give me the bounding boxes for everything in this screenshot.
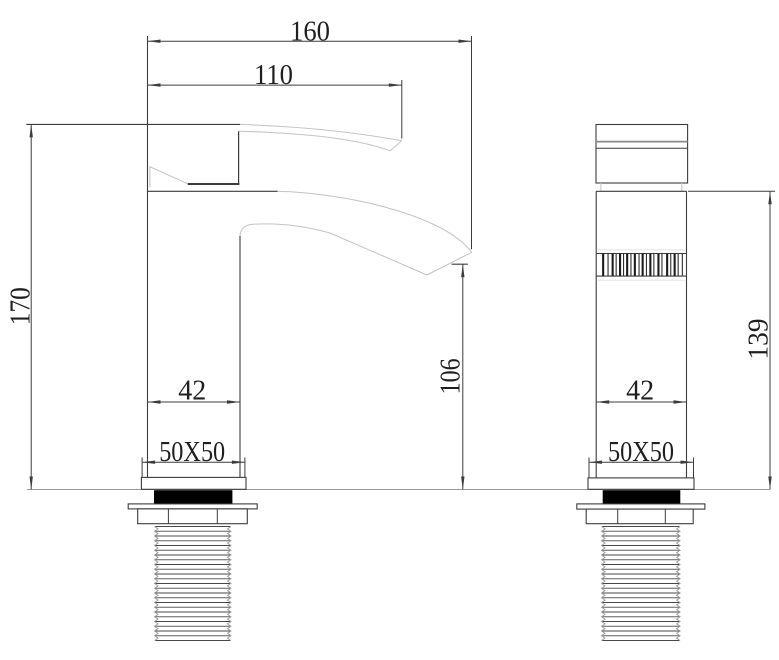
svg-text:50X50: 50X50: [608, 436, 674, 468]
svg-text:139: 139: [743, 319, 775, 360]
svg-text:106: 106: [434, 358, 466, 394]
svg-text:50X50: 50X50: [159, 436, 225, 468]
svg-text:160: 160: [290, 15, 330, 47]
svg-text:170: 170: [5, 287, 37, 325]
svg-text:42: 42: [626, 374, 654, 406]
svg-text:110: 110: [254, 59, 293, 91]
svg-text:42: 42: [178, 374, 206, 406]
